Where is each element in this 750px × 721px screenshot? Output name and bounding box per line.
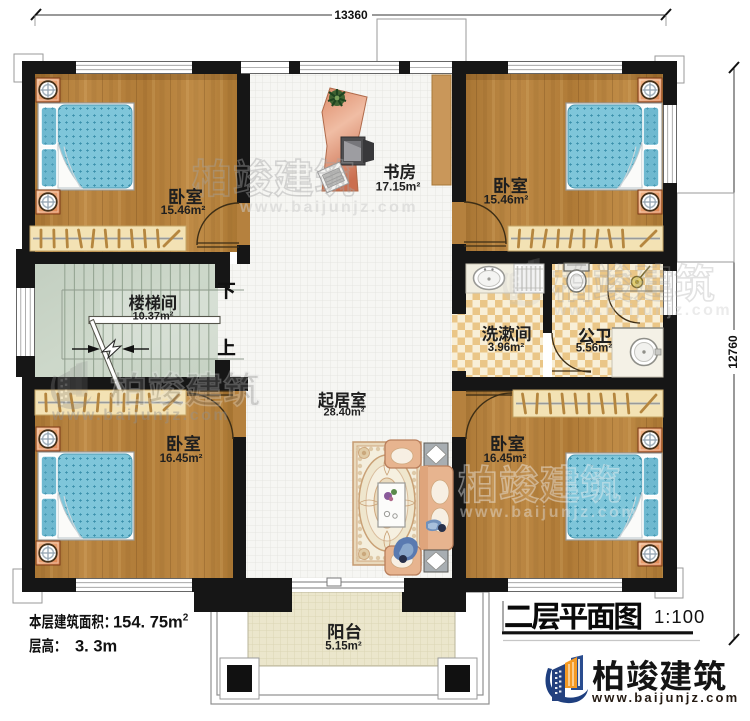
svg-text:17.15m²: 17.15m² (376, 180, 421, 194)
svg-text:10.37m²: 10.37m² (133, 311, 174, 323)
svg-text:15.46m²: 15.46m² (161, 203, 206, 217)
svg-text:www.baijunjz.com: www.baijunjz.com (51, 407, 230, 424)
svg-text:www.baijunjz.com: www.baijunjz.com (459, 504, 638, 521)
svg-text:www.baijunjz.com: www.baijunjz.com (591, 690, 739, 705)
svg-text:12760: 12760 (726, 335, 740, 369)
svg-text:13360: 13360 (334, 8, 368, 22)
svg-text:1:100: 1:100 (654, 606, 705, 627)
svg-text:16.45m²: 16.45m² (160, 453, 203, 465)
svg-text:www.baijunjz.com: www.baijunjz.com (239, 199, 418, 216)
svg-text:3.96m²: 3.96m² (488, 342, 525, 354)
svg-text:28.40m²: 28.40m² (324, 407, 365, 419)
svg-text:3. 3m: 3. 3m (75, 638, 117, 656)
svg-text:5.56m²: 5.56m² (576, 343, 613, 355)
svg-text:15.46m²: 15.46m² (484, 193, 529, 207)
svg-text:www.baijunjz.com: www.baijunjz.com (553, 302, 732, 319)
svg-text:154. 75m2: 154. 75m2 (113, 613, 189, 632)
svg-text:16.45m²: 16.45m² (484, 453, 527, 465)
svg-text:5.15m²: 5.15m² (325, 641, 362, 653)
